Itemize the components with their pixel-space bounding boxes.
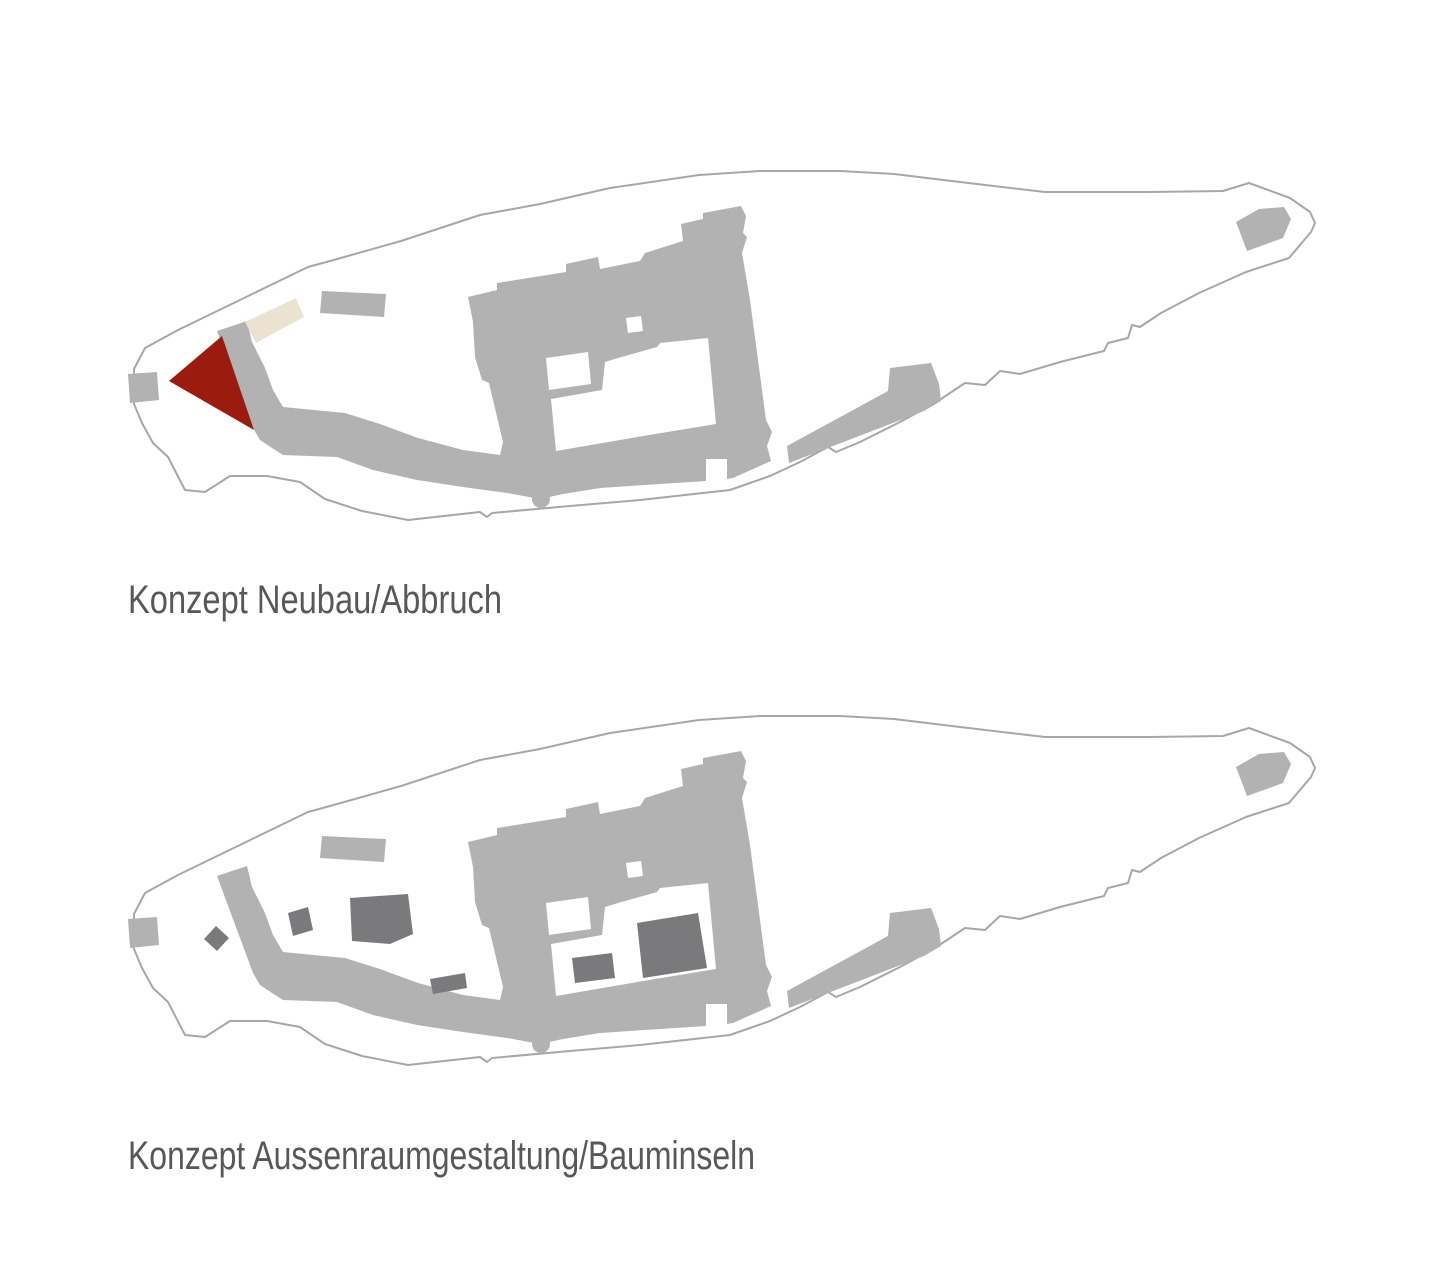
caption-aussenraumgestaltung: Konzept Aussenraumgestaltung/Bauminseln [128, 1134, 755, 1178]
tree-island [288, 907, 313, 936]
diagram-neubau-abbruch: Konzept Neubau/Abbruch [128, 171, 1315, 622]
tree-island [350, 894, 413, 944]
caption-neubau-abbruch: Konzept Neubau/Abbruch [128, 578, 502, 622]
tree-island [572, 953, 615, 983]
site-plan-diagrams: Konzept Neubau/Abbruch Konzept Aussenrau… [0, 0, 1440, 1286]
tree-island [430, 973, 467, 994]
base-plan-bottom [128, 716, 1315, 1065]
tree-island [637, 913, 707, 978]
tree-island [204, 926, 229, 951]
diagram-aussenraumgestaltung: Konzept Aussenraumgestaltung/Bauminseln [128, 716, 1315, 1178]
page: Konzept Neubau/Abbruch Konzept Aussenrau… [0, 0, 1440, 1286]
base-plan-top [128, 171, 1315, 520]
abbruch-marker [245, 298, 304, 343]
